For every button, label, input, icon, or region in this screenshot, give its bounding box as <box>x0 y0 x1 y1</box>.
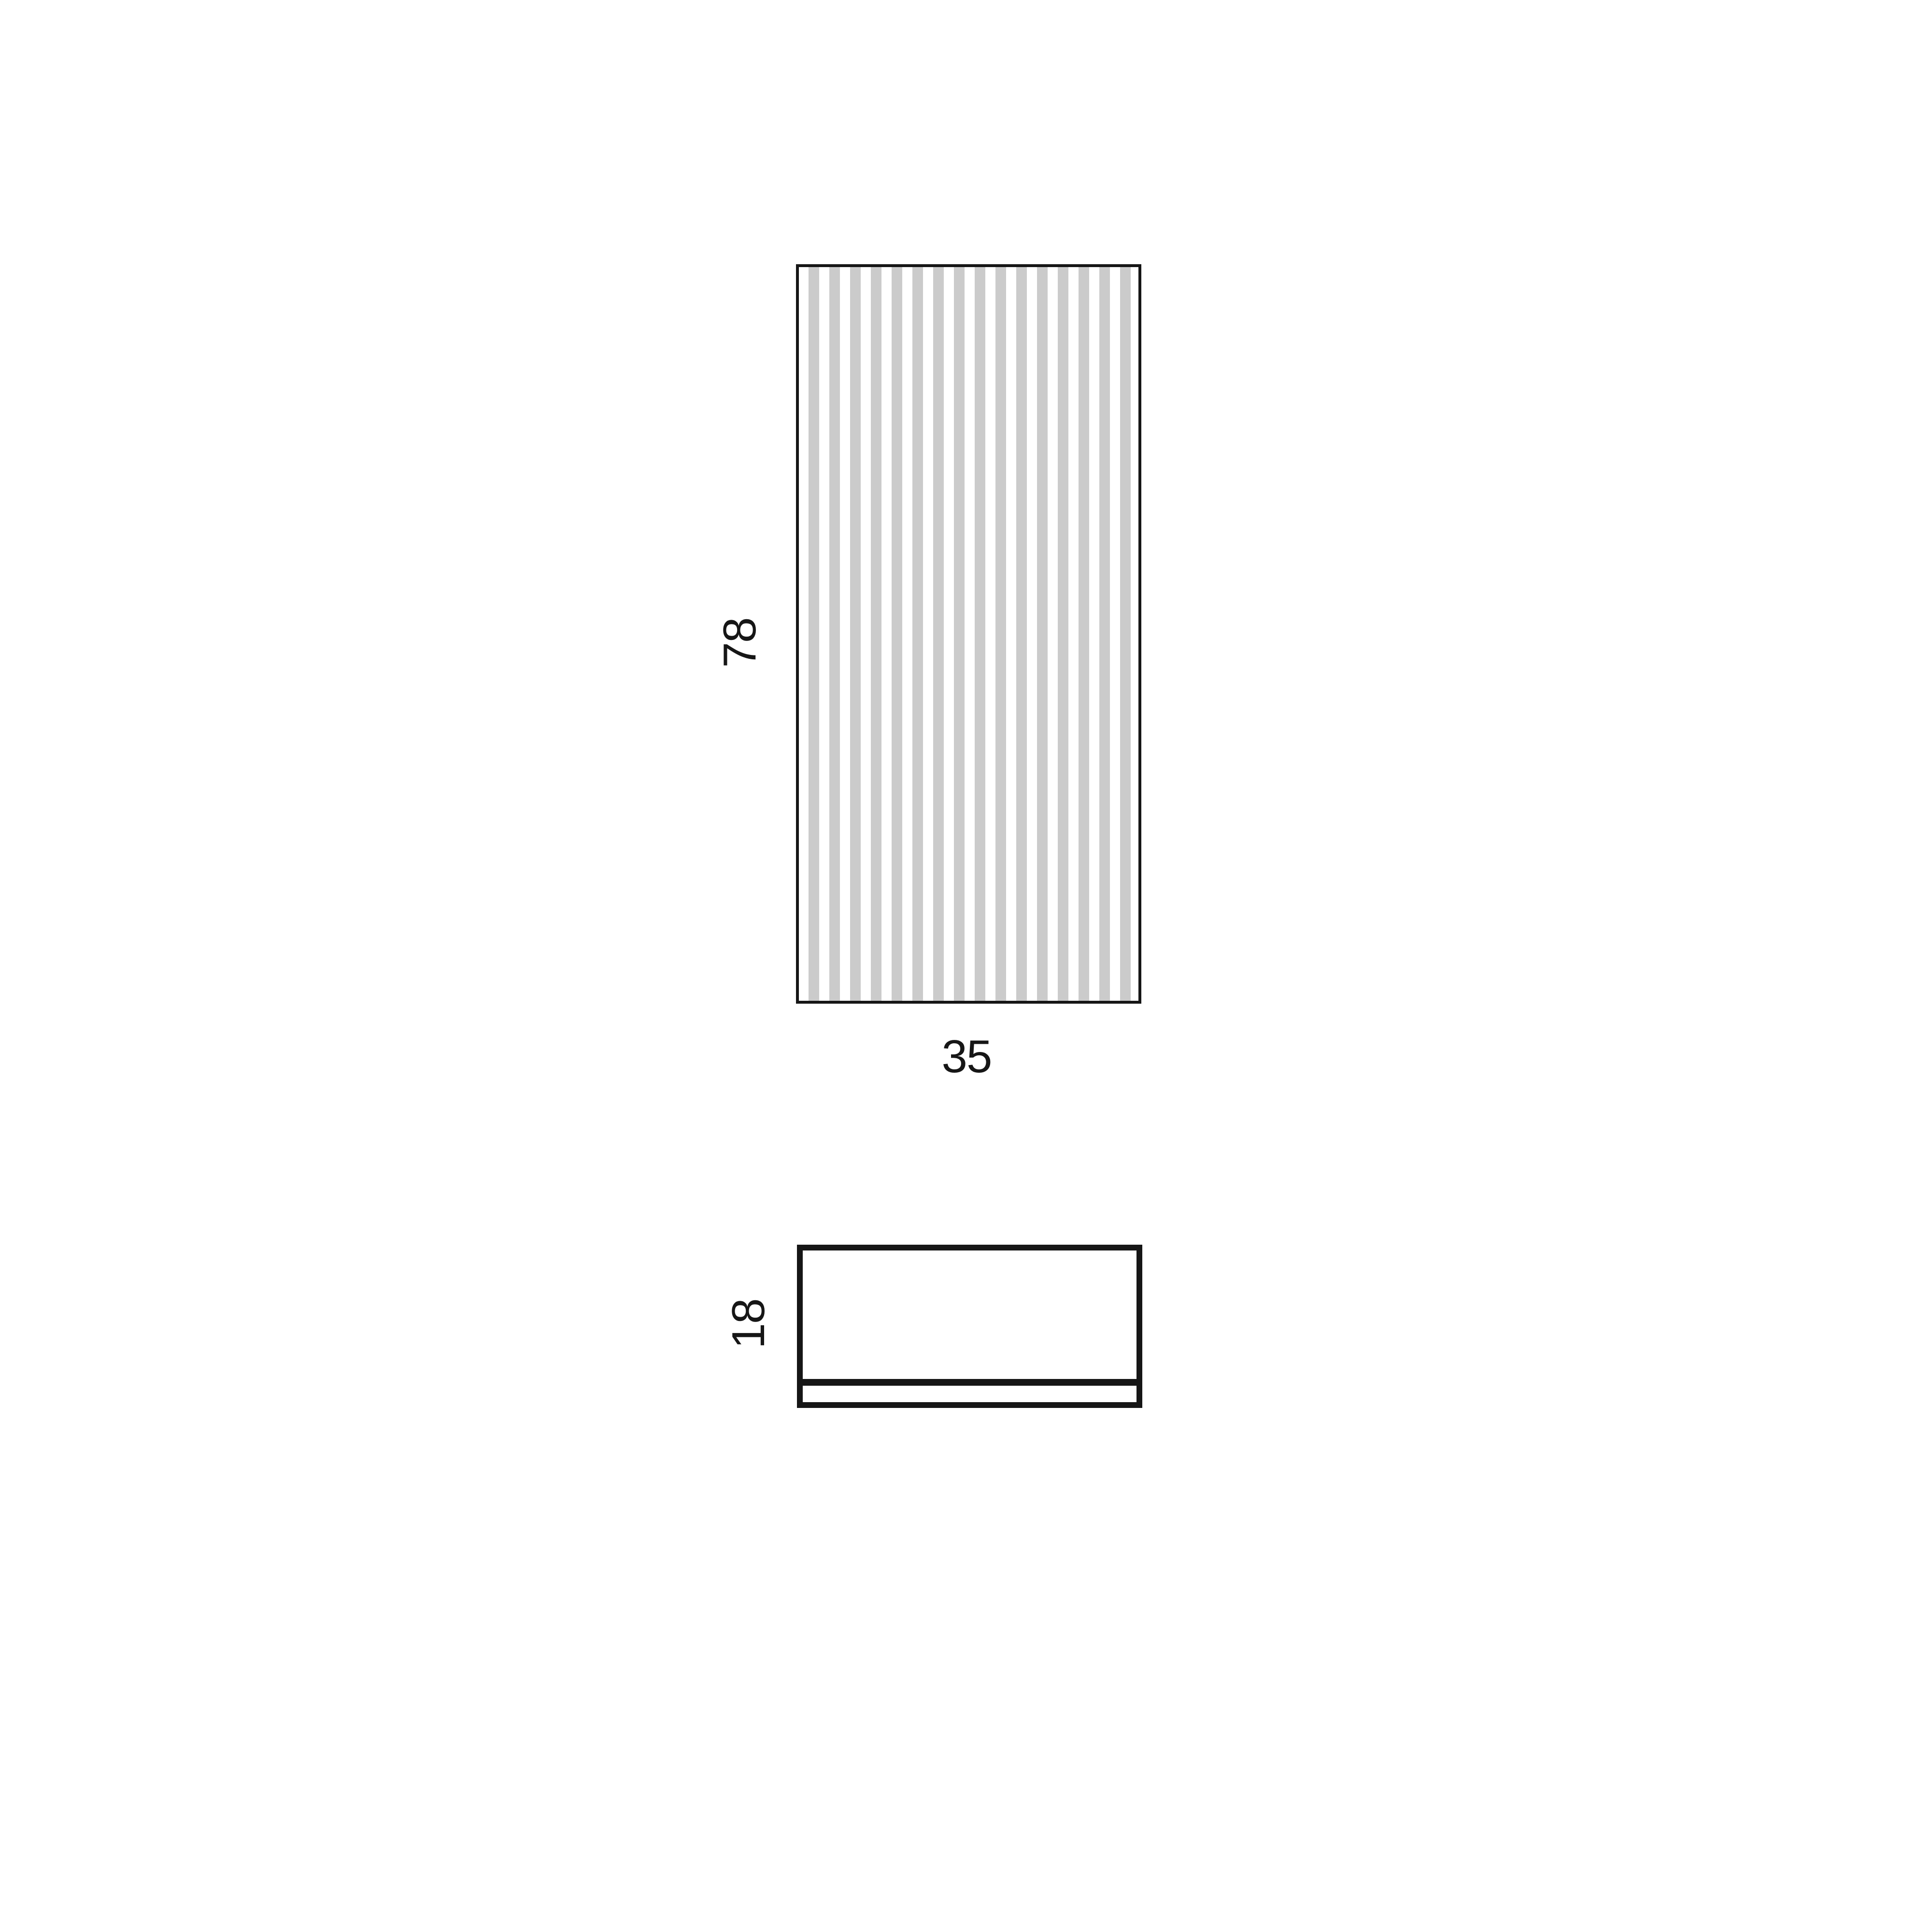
fluted-stripe-pattern <box>799 267 1138 1001</box>
dimension-diagram: 78 35 18 <box>0 0 1932 1932</box>
top-view-inner-line <box>803 1379 1136 1386</box>
depth-dimension-label: 18 <box>725 1299 772 1349</box>
height-dimension-label: 78 <box>717 618 763 668</box>
width-dimension-label: 35 <box>942 1034 992 1080</box>
front-view-panel <box>796 264 1141 1004</box>
top-view-panel <box>797 1245 1142 1408</box>
